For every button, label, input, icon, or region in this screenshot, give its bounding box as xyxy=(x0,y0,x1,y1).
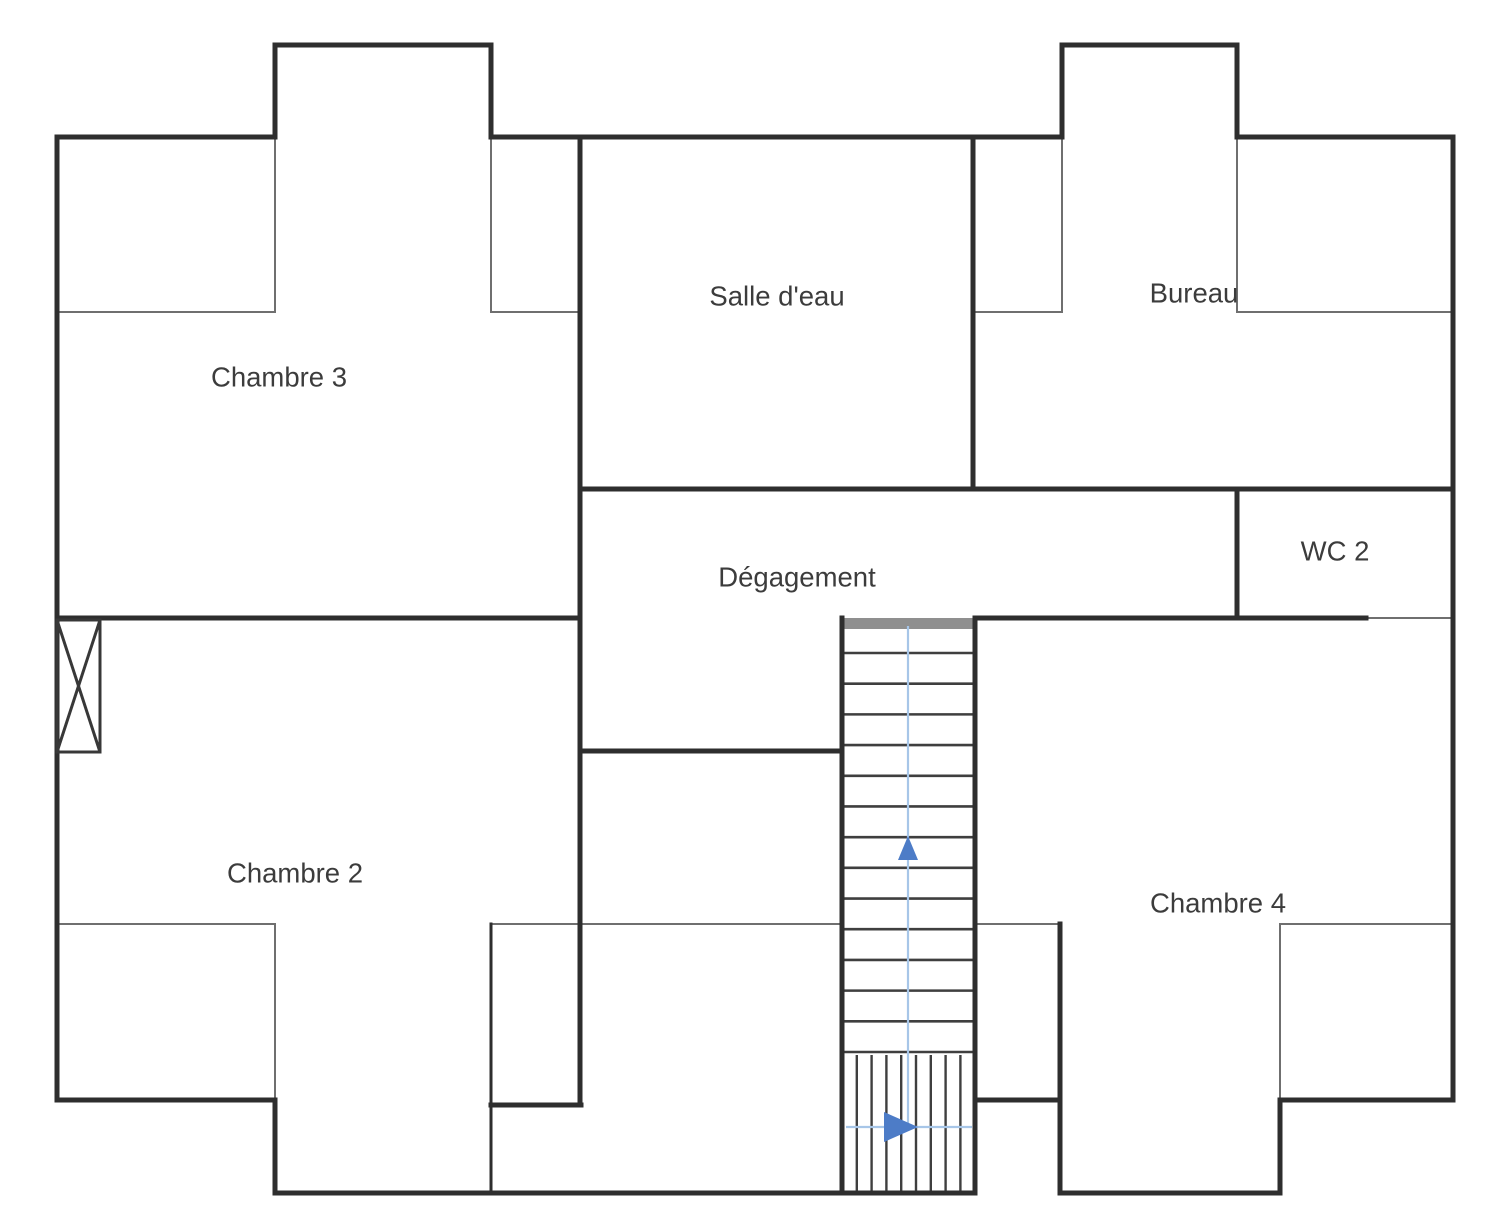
plan-background xyxy=(0,0,1500,1226)
room-label-chambre-3: Chambre 3 xyxy=(211,362,347,393)
floor-plan-svg: Chambre 3Salle d'eauBureauDégagementWC 2… xyxy=(0,0,1500,1226)
room-label-chambre-4: Chambre 4 xyxy=(1150,888,1286,919)
room-label-salle-d-eau: Salle d'eau xyxy=(709,281,844,312)
room-label-bureau: Bureau xyxy=(1150,278,1239,309)
room-label-wc-2: WC 2 xyxy=(1301,536,1370,567)
room-label-chambre-2: Chambre 2 xyxy=(227,858,363,889)
room-label-degagement: Dégagement xyxy=(718,562,876,593)
floor-plan: Chambre 3Salle d'eauBureauDégagementWC 2… xyxy=(0,0,1500,1226)
